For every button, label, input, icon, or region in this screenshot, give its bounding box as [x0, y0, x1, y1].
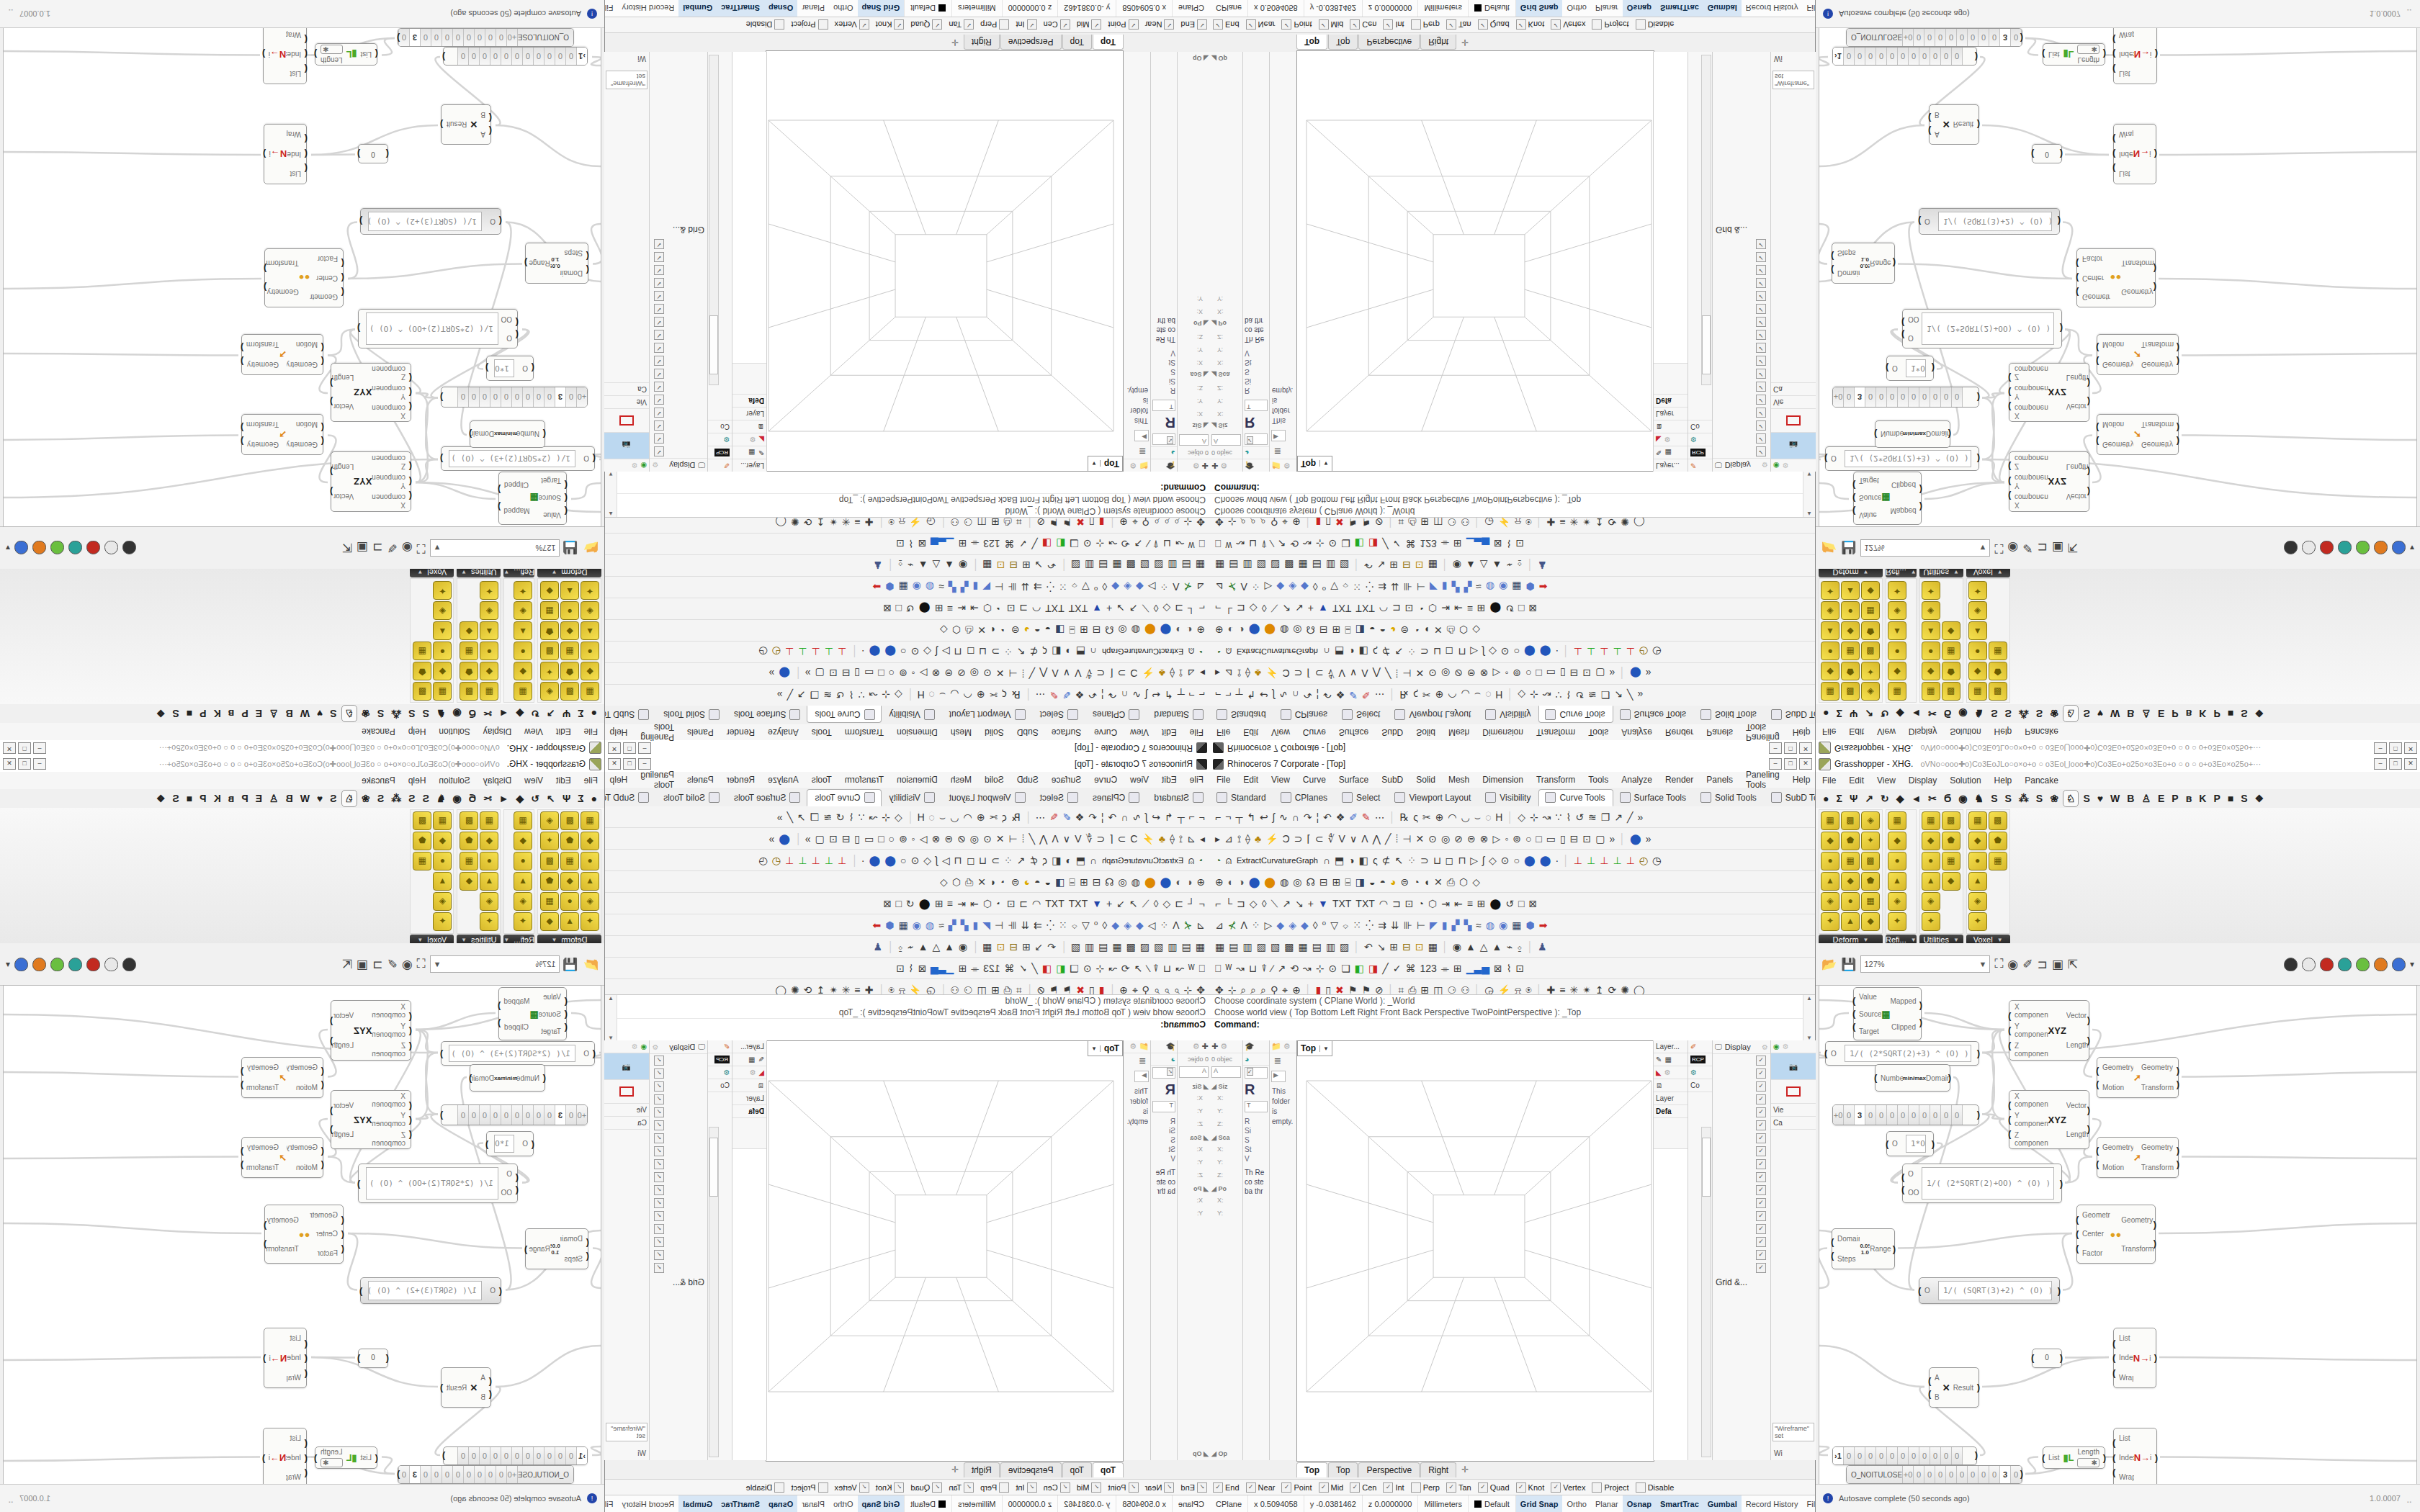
toolbar-button-icon[interactable]: ○ [887, 665, 897, 683]
toolbar-button-icon[interactable]: H [1493, 686, 1505, 705]
toolbar-button-icon[interactable]: ❏ [1067, 959, 1081, 978]
gh-component-tab-9[interactable]: ◉ [1955, 791, 1970, 806]
active-layer-pane[interactable]: Default [1469, 0, 1516, 17]
toolbar-button-icon[interactable]: ▚ [946, 916, 959, 935]
digit-cell[interactable]: 0 [468, 387, 479, 407]
draw-icon[interactable]: ✐ [387, 541, 398, 556]
display-option-checkbox[interactable]: ✓ [654, 395, 664, 405]
toolbar-tab-solid-tools[interactable]: Solid Tools [655, 789, 726, 806]
preview-gumdrop-6[interactable] [14, 541, 28, 555]
digit-cell[interactable]: 0 [1844, 387, 1855, 407]
toolbar-button-icon[interactable]: ▧ [1138, 937, 1152, 956]
gh-node-move1[interactable]: GeometryMotion➚GeometryTransform(()) [2097, 1057, 2179, 1098]
boxedit-input[interactable]: A [1179, 1066, 1209, 1078]
digit-cell[interactable]: 0 [1946, 29, 1957, 46]
boxedit-input[interactable]: A [1211, 1066, 1241, 1078]
gh-component-tab-19[interactable]: W [297, 706, 313, 721]
y-coordinate[interactable]: y -0.0381462 [1057, 0, 1116, 17]
toolbar-button-icon[interactable]: ▽ [1080, 578, 1092, 597]
toolbar-button-icon[interactable]: ◔ [994, 600, 1004, 618]
toolbar-button-icon[interactable]: ◇ [1470, 873, 1482, 891]
toolbar-button-icon[interactable]: ⊕ [1213, 873, 1226, 891]
status-toggle-smarttrac[interactable]: SmartTrac [717, 1495, 764, 1512]
display-option-checkbox[interactable]: ✓ [1756, 330, 1766, 340]
toolbar-button-icon[interactable]: ⎕ [1213, 959, 1223, 978]
toolbar-button-icon[interactable]: » [767, 665, 777, 683]
status-toggle-grid-snap[interactable]: Grid Snap [858, 0, 905, 17]
display-option-checkbox[interactable]: ✓ [1756, 356, 1766, 366]
toolbar-button-icon[interactable]: ⊣ [1400, 665, 1413, 683]
digit-cell[interactable]: 0 [457, 387, 468, 407]
osnap-checkbox-tan[interactable]: ✓ [1446, 1482, 1456, 1493]
display-option-checkbox[interactable]: ✓ [1756, 369, 1766, 379]
toolbar-button-icon[interactable]: ◔ [1197, 643, 1207, 662]
toolbar-button-icon[interactable]: ↗ [1127, 600, 1140, 618]
display-option-checkbox[interactable]: ✓ [1756, 408, 1766, 418]
canvas-zoom-dropdown[interactable]: 127%▼ [1860, 955, 1990, 973]
gh-node-vec2[interactable]: X componentY componentZ componentXYZVect… [331, 363, 411, 422]
osnap-checkbox-end[interactable]: ✓ [1213, 1482, 1223, 1493]
viewport-tab-right-3[interactable]: Right [1420, 1462, 1456, 1477]
toolbar-button-icon[interactable]: ⬤ [1628, 665, 1644, 683]
toolbar-button-icon[interactable]: ▩ [1124, 937, 1138, 956]
toolbar-button-icon[interactable]: ╱ [1625, 686, 1635, 705]
toolbar-button-icon[interactable]: ◍ [923, 578, 936, 597]
toolbar-button-icon[interactable]: ↗ [1132, 535, 1145, 554]
rhino-titlebar[interactable]: Rhinoceros 7 Corporate - [Top] – □ ✕ [605, 739, 1210, 756]
rhino-command-area[interactable]: Choose coordinate system ( CPlane World … [1210, 470, 1815, 518]
toolbar-button-icon[interactable]: ⊟ [1568, 829, 1581, 848]
toolbar-button-icon[interactable]: ↶ [1045, 937, 1058, 956]
toolbar-button-icon[interactable]: ⌐ [1213, 894, 1223, 913]
toolbar-button-icon[interactable]: ⋯ [1373, 686, 1387, 705]
toolbar-button-icon[interactable]: ⌇ [847, 686, 856, 705]
toolbar-tab-solid-tools[interactable]: Solid Tools [1694, 706, 1765, 723]
display-option-checkbox[interactable]: ✓ [1756, 382, 1766, 392]
toolbar-button-icon[interactable]: ◇ [1160, 894, 1173, 913]
preview-gumdrop-1[interactable] [2302, 958, 2316, 971]
boxedit-section[interactable]: ◢ Po [1178, 318, 1210, 330]
display-panel[interactable]: 🖵 Display ⚙ ✓✓✓✓✓✓✓✓✓✓✓✓✓✓✓✓✓ Grid &... [650, 52, 708, 472]
gh-node-mul[interactable]: AB✕Result(() [441, 1367, 491, 1408]
toolbar-button-icon[interactable]: ⊟ [1007, 937, 1020, 956]
toolbar-tab-subd-too[interactable]: SubD Too [605, 706, 655, 723]
rhino-menu-view[interactable]: View [1265, 775, 1296, 785]
boxedit-section[interactable]: ◢ Po [1178, 1182, 1210, 1194]
minimize-button[interactable]: – [1769, 758, 1782, 770]
toolbar-button-icon[interactable]: ◕ [1388, 621, 1398, 640]
status-toggle-filter[interactable]: Filter [1802, 0, 1815, 17]
toolbar-button-icon[interactable]: ∨ [1061, 829, 1072, 848]
digit-cell[interactable]: ›1 [1833, 48, 1844, 65]
gh-component-icon[interactable]: ▦ [1942, 642, 1960, 660]
digit-cell[interactable]: +0 [576, 1105, 587, 1125]
gh-menu-edit[interactable]: Edit [550, 775, 578, 786]
toolbar-button-icon[interactable]: ◉ [1451, 937, 1464, 956]
preview-eye-icon[interactable]: ◉ [2007, 541, 2018, 556]
rhino-menu-curve[interactable]: Curve [1088, 775, 1124, 785]
toolbar-button-icon[interactable]: ◠ [961, 808, 974, 827]
gh-component-icon[interactable]: ⬟ [1989, 662, 2007, 680]
toolbar-button-icon[interactable]: ✕ [1432, 621, 1445, 640]
viewport-top[interactable]: Top ▼ [1296, 50, 1654, 472]
digit-cell[interactable]: 0 [533, 1105, 544, 1125]
osnap-checkbox-project[interactable] [818, 19, 828, 30]
gh-component-icon[interactable]: ✦ [1922, 581, 1940, 600]
gh-component-icon[interactable]: ⬟ [540, 621, 559, 640]
gh-component-icon[interactable]: ▦ [480, 682, 498, 701]
toolbar-button-icon[interactable]: ◌ [927, 686, 937, 705]
preview-gumdrop-3[interactable] [68, 958, 82, 971]
gh-menu-display[interactable]: Display [1902, 775, 1943, 786]
toolbar-button-icon[interactable]: ◤ [980, 578, 992, 597]
gh-component-tab-19[interactable]: W [2107, 791, 2123, 806]
display-option-checkbox[interactable]: ✓ [1756, 420, 1766, 431]
gh-group-label[interactable]: Utilities▼ [1919, 567, 1963, 577]
viewport-tab-perspective-2[interactable]: Perspective [1358, 1462, 1420, 1477]
gh-component-icon[interactable]: ▩ [413, 811, 431, 830]
osnap-checkbox-cen[interactable]: ✓ [1350, 1482, 1360, 1493]
toolbar-button-icon[interactable]: ◕ [1388, 873, 1398, 891]
gh-component-icon[interactable]: ◆ [460, 621, 478, 640]
digit-cell[interactable]: 0 [1935, 1466, 1946, 1483]
toolbar-button-icon[interactable]: ↺ [1503, 600, 1516, 618]
toolbar-tab-viewport-layout[interactable]: Viewport Layout [1388, 789, 1479, 806]
toolbar-button-icon[interactable]: ▥ [1083, 557, 1096, 575]
toolbar-button-icon[interactable]: ◉ [1497, 916, 1510, 935]
toolbar-button-icon[interactable]: Ɔ [1281, 829, 1292, 848]
toolbar-tab-subd-too[interactable]: SubD Too [1765, 789, 1815, 806]
gh-component-icon[interactable]: ▩ [560, 682, 579, 701]
gh-titlebar[interactable]: Grasshopper - XHG. oVNo○ooo✚o)Co3EoJLo○o… [0, 756, 604, 773]
gh-component-tab-14[interactable]: S [375, 791, 387, 806]
toolbar-button-icon[interactable]: □ [1533, 829, 1543, 848]
toolbar-tab-visibility[interactable]: Visibility [882, 706, 941, 723]
gh-group-label[interactable]: Refi...▼ [503, 567, 534, 577]
toolbar-button-icon[interactable]: ⊞ [1388, 557, 1401, 575]
toolbar-button-icon[interactable]: » [775, 686, 785, 705]
gh-component-tab-24[interactable]: ʙ [2183, 706, 2195, 721]
toolbar-button-icon[interactable]: ↖ [1392, 851, 1405, 870]
status-toggle-record-history[interactable]: Record History [618, 0, 679, 17]
toolbar-button-icon[interactable]: ◠ [1446, 808, 1458, 827]
preview-gumdrop-6[interactable] [2392, 541, 2406, 555]
toolbar-button-icon[interactable]: ⊟ [1317, 621, 1330, 640]
layers-header[interactable]: Layer... [732, 1040, 766, 1053]
toolbar-button-icon[interactable]: ◴ [770, 643, 783, 662]
maximize-button[interactable]: □ [1784, 758, 1797, 770]
toolbar-button-icon[interactable]: ▲ [916, 557, 931, 575]
toolbar-button-icon[interactable]: ❏ [1339, 959, 1353, 978]
toolbar-button-icon[interactable]: ⬢ [883, 916, 896, 935]
gh-menu-edit[interactable]: Edit [550, 726, 578, 737]
toolbar-button-icon[interactable]: ⊓ [1456, 851, 1468, 870]
rhino-menu-analyze[interactable]: Analyze [1615, 775, 1659, 785]
toolbar-button-icon[interactable]: ▢ [1593, 829, 1607, 848]
preview-eye-icon[interactable]: ◉ [402, 541, 413, 556]
toolbar-button-icon[interactable]: ✕ [994, 665, 1007, 683]
toolbar-button-icon[interactable]: ⊠ [915, 535, 928, 554]
gh-component-tab-10[interactable]: ♞ [434, 706, 449, 721]
gh-component-icon[interactable]: ◈ [1968, 601, 1987, 620]
gh-menu-file[interactable]: File [1816, 726, 1842, 737]
toolbar-button-icon[interactable]: ⁙ [1057, 578, 1070, 597]
toolbar-button-icon[interactable]: ▞ [1450, 578, 1462, 597]
toolbar-button-icon[interactable]: ⌯ [969, 535, 981, 554]
toolbar-button-icon[interactable]: ⊹ [1528, 686, 1541, 705]
gh-component-icon[interactable]: ▦ [1821, 811, 1839, 830]
layers-panel[interactable]: Layer... ✎▦ ◣⚙ 🗎 Layer Defa [732, 52, 767, 472]
toolbar-button-icon[interactable]: └ [1186, 600, 1197, 618]
gh-component-tab-8[interactable]: Ϭ [1941, 706, 1954, 721]
new-viewport-tab-icon[interactable]: ✛ [1457, 1464, 1473, 1475]
gh-component-icon[interactable]: ◆ [1888, 662, 1906, 680]
gh-node-exprS[interactable]: O1*O() [1886, 1131, 1934, 1156]
toolbar-button-icon[interactable]: ○ [887, 829, 897, 848]
toolbar-button-icon[interactable]: Ɔ [1281, 665, 1292, 683]
toolbar-button-icon[interactable]: ↗ [1612, 686, 1625, 705]
display-option-checkbox[interactable]: ✓ [654, 1146, 664, 1156]
properties-strip[interactable]: ✐ RCP ⚙ Co [1688, 1040, 1712, 1460]
toolbar-tab-visibility[interactable]: Visibility [882, 789, 941, 806]
gh-component-tab-27[interactable]: ■ [2225, 706, 2236, 721]
view-panel[interactable]: ◉⚙ 📷 Vie Ca "Wireframe" set Wi [604, 1040, 650, 1460]
gh-component-tab-10[interactable]: ♞ [1972, 706, 1987, 721]
layer-name[interactable]: Defa [1654, 1105, 1688, 1118]
gh-component-icon[interactable]: ▦ [560, 852, 579, 870]
sketch-icon[interactable]: ⊐ [2037, 541, 2047, 556]
maximize-button[interactable]: □ [2389, 742, 2402, 754]
gh-group-label[interactable]: Voxel▼ [410, 567, 454, 577]
digit-cell[interactable]: 0 [1909, 1105, 1919, 1125]
toolbar-button-icon[interactable]: ◦ [910, 829, 918, 848]
toolbar-button-icon[interactable]: ▭ [1544, 665, 1558, 683]
toolbar-button-icon[interactable]: ⬤ [1488, 894, 1504, 913]
osnap-checkbox-near[interactable]: ✓ [1164, 19, 1174, 30]
toolbar-button-icon[interactable]: ⁙ [1057, 916, 1070, 935]
toolbar-button-icon[interactable]: ⁛ [1363, 578, 1376, 597]
toolbar-button-icon[interactable]: ◕ [1022, 621, 1032, 640]
gh-node-expr1[interactable]: O1/( (2*SQRT(2)+3) ^ (O) )() [1825, 1041, 1979, 1066]
toolbar-button-icon[interactable]: ↗ [1132, 959, 1145, 978]
toolbar-button-icon[interactable]: ς [1411, 808, 1420, 827]
digit-cell[interactable]: 0 [1919, 1447, 1930, 1464]
folder-panel[interactable]: 📁⚙ ≡ ▶ This folder is empty. [1270, 52, 1297, 472]
display-option-checkbox[interactable]: ✓ [1756, 1263, 1766, 1273]
toolbar-button-icon[interactable]: ✂ [987, 808, 1000, 827]
toolbar-button-icon[interactable]: ⊕ [1194, 621, 1207, 640]
toolbar-button-icon[interactable]: ⌁ [1504, 937, 1514, 956]
rhino-titlebar[interactable]: Rhinoceros 7 Corporate - [Top] – □ ✕ [605, 756, 1210, 773]
toolbar-button-icon[interactable]: ▨ [1337, 937, 1351, 956]
toolbar-button-icon[interactable]: ∜ [1083, 829, 1094, 848]
digit-cell[interactable]: 0 [1935, 29, 1946, 46]
camera-icon[interactable]: 📷 [604, 432, 649, 459]
gh-component-tab-9[interactable]: ◉ [449, 791, 464, 806]
toolbar-button-icon[interactable]: ♟ [871, 937, 884, 956]
units-pane[interactable]: Millimeters [1418, 1495, 1469, 1512]
axes-widget-icon[interactable]: ⇱ [2068, 541, 2078, 556]
toolbar-button-icon[interactable]: ⬤ [1158, 873, 1174, 891]
boxedit-panel[interactable]: ✚⚙ 0 objec A ◢ SizX:Y:Z:◢ ScaX:Y:Z:◢ PoX… [1210, 1040, 1243, 1460]
toolbar-button-icon[interactable]: ∩ [1119, 808, 1130, 827]
digit-cell[interactable]: 0 [501, 387, 511, 407]
gh-node-remap[interactable]: ValueSourceTarget▦MappedClipped((()) [1853, 472, 1922, 525]
display-option-checkbox[interactable]: ✓ [1756, 1120, 1766, 1130]
osnap-checkbox-perp[interactable] [1411, 19, 1421, 30]
gh-component-icon[interactable]: ◆ [1821, 662, 1839, 680]
toolbar-button-icon[interactable]: ❐ [1599, 686, 1613, 705]
display-option-checkbox[interactable]: ✓ [1756, 1172, 1766, 1182]
close-button[interactable]: ✕ [2404, 758, 2417, 770]
toolbar-button-icon[interactable]: ▨ [1255, 937, 1268, 956]
gh-component-icon[interactable]: ▦ [1989, 852, 2007, 870]
gh-component-tab-19[interactable]: W [2107, 706, 2123, 721]
toolbar-button-icon[interactable]: ς [1411, 686, 1420, 705]
osnap-checkbox-project[interactable] [1592, 1482, 1602, 1493]
toolbar-button-icon[interactable]: ⁘ [1157, 916, 1170, 935]
digit-cell[interactable]: 3 [555, 1105, 565, 1125]
gh-component-icon[interactable]: ✦ [1861, 832, 1880, 850]
display-option-checkbox[interactable]: ✓ [654, 1107, 664, 1117]
camera-icon[interactable]: ▣ [357, 957, 368, 972]
gh-component-icon[interactable]: ● [1821, 642, 1839, 660]
toolbar-button-icon[interactable]: ○ [1523, 665, 1533, 683]
digit-cell[interactable]: 0 [533, 48, 544, 65]
toolbar-button-label[interactable]: ExtractCurvatureGraph [1234, 856, 1321, 865]
gh-component-icon[interactable]: ✦ [514, 581, 532, 600]
boxedit-input[interactable]: A [1179, 434, 1209, 446]
toolbar-button-icon[interactable]: ⋯ [1033, 808, 1047, 827]
toolbar-button-icon[interactable]: ◡ [948, 808, 961, 827]
toolbar-button-label[interactable]: ExtractCurvatureGraph [1234, 648, 1321, 657]
digit-cell[interactable]: 0 [511, 1447, 522, 1464]
toolbar-button-icon[interactable]: ↺ [904, 600, 917, 618]
gh-component-tab-4[interactable]: ↻ [1878, 791, 1892, 806]
osnap-checkbox-point[interactable]: ✓ [1281, 19, 1291, 30]
gh-component-icon[interactable]: ✦ [1922, 912, 1940, 931]
toolbar-button-icon[interactable]: ⬤ [1628, 829, 1644, 848]
digit-cell[interactable]: 0 [1952, 1105, 1963, 1125]
viewport-tab-top-0[interactable]: Top [1093, 35, 1124, 50]
toolbar-button-icon[interactable]: ▨ [1069, 937, 1083, 956]
toolbar-button-icon[interactable]: ᵂ [1223, 535, 1234, 554]
gh-component-icon[interactable]: ⬟ [1942, 832, 1960, 850]
toolbar-button-icon[interactable]: ◇ [1470, 621, 1482, 640]
status-toggle-osnap[interactable]: Osnap [1623, 1495, 1656, 1512]
gh-component-icon[interactable]: ◈ [540, 682, 559, 701]
axes-widget-icon[interactable]: ⇱ [342, 957, 352, 972]
gh-component-tab-15[interactable]: ❀ [2047, 706, 2061, 721]
viewport-top[interactable]: Top ▼ [766, 50, 1124, 472]
toolbar-button-icon[interactable]: V [1072, 829, 1083, 848]
toolbar-button-icon[interactable]: ↘ [1293, 600, 1306, 618]
toolbar-button-icon[interactable]: » [1635, 808, 1645, 827]
toolbar-button-icon[interactable]: ⊐ [1017, 894, 1030, 913]
toolbar-button-icon[interactable]: ∕ [1269, 959, 1275, 978]
toolbar-button-icon[interactable]: ⊥ [796, 851, 809, 870]
gh-node-scr2[interactable]: ›100000000000) [1832, 47, 1977, 66]
gh-menu-pancake[interactable]: Pancake [2018, 775, 2065, 786]
toolbar-button-icon[interactable]: ◇ [1247, 894, 1260, 913]
gh-node-bounds[interactable]: Numbersmin/maxDomain() [470, 420, 545, 448]
toolbar-button-icon[interactable]: ▦ [1213, 937, 1227, 956]
rhino-menu-dimension[interactable]: Dimension [890, 727, 944, 737]
toolbar-button-icon[interactable]: ◨ [1053, 621, 1067, 640]
toolbar-button-icon[interactable]: ◧ [1353, 959, 1366, 978]
toolbar-button-icon[interactable]: ⌣ [937, 686, 948, 705]
toolbar-button-icon[interactable]: ¬ [1223, 808, 1233, 827]
toolbar-button-icon[interactable]: ▯ [852, 665, 862, 683]
gh-component-tab-23[interactable]: P [2169, 791, 2181, 806]
toolbar-button-icon[interactable]: ▮ [1440, 916, 1450, 935]
digit-cell[interactable]: +0 [1903, 29, 1914, 46]
gh-component-tab-16[interactable]: ♘ [2063, 790, 2079, 807]
gh-component-icon[interactable]: ◆ [540, 912, 559, 931]
toolbar-button-icon[interactable]: ⊠ [1526, 894, 1539, 913]
toolbar-tab-select[interactable]: Select [1032, 789, 1085, 806]
toolbar-button-icon[interactable]: ⌐ [1213, 600, 1223, 618]
toolbar-button-icon[interactable]: ◊ [1260, 894, 1269, 913]
toolbar-button-icon[interactable]: ▯ [1558, 665, 1568, 683]
toolbar-tab-solid-tools[interactable]: Solid Tools [1694, 789, 1765, 806]
preview-eye-icon[interactable]: ◉ [2007, 957, 2018, 972]
gh-component-icon[interactable]: ✦ [540, 832, 559, 850]
toolbar-button-icon[interactable]: ⬤ [1522, 643, 1538, 662]
toolbar-button-icon[interactable]: ╱ [1625, 808, 1635, 827]
gh-node-li2[interactable]: ListIndexWrapN→i((() [2113, 1428, 2157, 1485]
rhino-command-area[interactable]: Choose coordinate system ( CPlane World … [605, 470, 1210, 518]
toolbar-button-icon[interactable]: ◈ [1121, 916, 1134, 935]
gh-menu-pancake[interactable]: Pancake [355, 726, 402, 737]
digit-cell[interactable]: 3 [1855, 1105, 1865, 1125]
toolbar-button-icon[interactable]: ⌔ [1340, 578, 1350, 597]
rhino-menu-surface[interactable]: Surface [1332, 775, 1375, 785]
toolbar-tab-select[interactable]: Select [1032, 706, 1085, 723]
gh-component-icon[interactable]: ▲ [581, 621, 599, 640]
toolbar-button-icon[interactable]: ◧ [1054, 959, 1067, 978]
toolbar-button-icon[interactable]: ↗ [1127, 894, 1140, 913]
display-option-checkbox[interactable]: ✓ [654, 330, 664, 340]
x-coordinate[interactable]: x 0.5094058 [1116, 0, 1172, 17]
toolbar-button-icon[interactable]: » [775, 808, 785, 827]
toolbar-button-icon[interactable]: □ [876, 665, 886, 683]
toolbar-button-icon[interactable]: ⬡ [1457, 621, 1470, 640]
y-coordinate[interactable]: y -0.0381462 [1057, 1495, 1116, 1512]
viewport-tab-perspective-2[interactable]: Perspective [1000, 1462, 1062, 1477]
toolbar-button-icon[interactable]: ⁰ [1320, 916, 1329, 935]
toolbar-button-icon[interactable]: ⟟ [1177, 829, 1185, 848]
toolbar-button-icon[interactable]: ▷ [1263, 916, 1275, 935]
gh-component-icon[interactable]: ◆ [581, 832, 599, 850]
digit-cell[interactable]: 0 [1909, 387, 1919, 407]
toolbar-button-icon[interactable]: ⊘ [1452, 665, 1465, 683]
toolbar-button-icon[interactable]: ◆ [1299, 578, 1311, 597]
toolbar-button-icon[interactable]: ⬡ [1457, 873, 1470, 891]
toolbar-button-icon[interactable]: ⇊ [1389, 578, 1402, 597]
digit-cell[interactable]: 0 [544, 48, 555, 65]
toolbar-button-icon[interactable]: ◊ [1151, 600, 1160, 618]
gh-component-tab-1[interactable]: Σ [575, 706, 586, 721]
toolbar-button-icon[interactable]: ⊡ [1005, 894, 1018, 913]
toolbar-button-icon[interactable]: ✕ [975, 873, 988, 891]
toolbar-button-icon[interactable]: ▲ [1464, 937, 1478, 956]
digit-cell[interactable]: 0 [565, 1105, 576, 1125]
toolbar-button-icon[interactable]: ⊿ [1194, 578, 1207, 597]
toolbar-button-icon[interactable]: ▷ [1146, 916, 1158, 935]
toolbar-button-icon[interactable]: + [1306, 894, 1316, 913]
digit-cell[interactable]: 3 [555, 387, 565, 407]
